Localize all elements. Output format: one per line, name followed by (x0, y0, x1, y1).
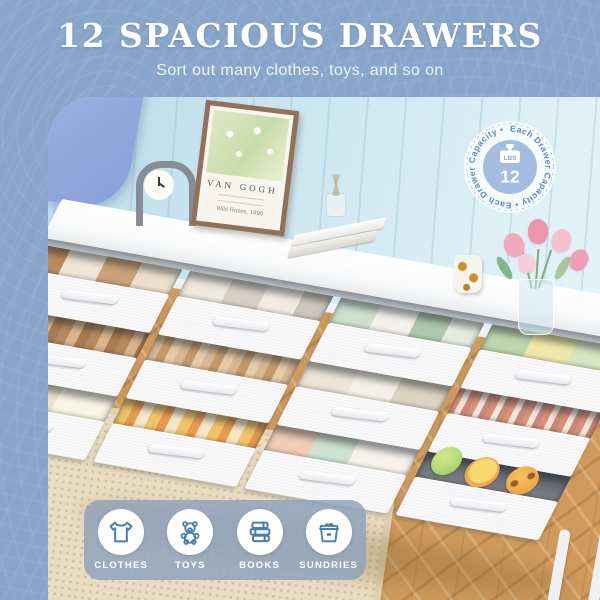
drawer-handle (331, 406, 390, 421)
drawer-handle (363, 343, 422, 358)
poster-text-lines (218, 194, 265, 207)
page-title: 12 SPACIOUS DRAWERS (0, 16, 600, 55)
category-panel: CLOTHES TOYS (84, 500, 366, 580)
wall-poster: VAN GOGH Wild Roses, 1890 (191, 100, 300, 237)
drawer-handle (449, 497, 508, 512)
poster-mat: VAN GOGH Wild Roses, 1890 (196, 105, 294, 230)
poster-artwork (206, 110, 289, 181)
teddy-bear-icon (176, 518, 204, 546)
category-label: BOOKS (228, 560, 292, 571)
category-clothes: CLOTHES (89, 509, 153, 571)
drawer-handle (514, 369, 573, 384)
category-sundries: SUNDRIES (297, 509, 361, 571)
header: 12 SPACIOUS DRAWERS Sort out many clothe… (0, 16, 600, 80)
category-bubble (167, 509, 213, 555)
category-toys: TOYS (158, 509, 222, 571)
capacity-badge-graphic: Each Drawer Capacity • Each Drawer Capac… (462, 119, 558, 215)
badge-value: 12 (500, 167, 520, 187)
reed-diffuser (326, 193, 346, 217)
category-label: TOYS (158, 560, 222, 571)
books-icon (246, 518, 274, 546)
page-subtitle: Sort out many clothes, toys, and so on (0, 62, 600, 80)
drawer-handle (48, 417, 55, 432)
drawer-handle (180, 380, 239, 395)
poster-caption: Wild Roses, 1890 (216, 205, 263, 217)
drawer-handle (48, 353, 87, 368)
tulip-flower (528, 219, 548, 244)
drawer-handle (482, 433, 541, 448)
category-books: BOOKS (228, 509, 292, 571)
drawer-handle (212, 316, 271, 331)
drawer-handle (61, 289, 120, 304)
drawer-handle (298, 470, 357, 485)
flower-leaf (494, 255, 515, 282)
category-label: SUNDRIES (297, 560, 361, 571)
clock-face (144, 170, 174, 200)
category-bubble (98, 509, 144, 555)
capacity-badge: Each Drawer Capacity • Each Drawer Capac… (462, 119, 558, 215)
badge-unit-label: LBS (504, 155, 518, 162)
storage-box-icon (315, 518, 343, 546)
category-label: CLOTHES (89, 560, 153, 571)
tulip-flower (517, 252, 537, 274)
category-bubble (306, 509, 352, 555)
arch-clock (136, 161, 196, 226)
tulip-flower (549, 227, 574, 254)
drawer-handle (147, 443, 206, 458)
product-infographic: 12 SPACIOUS DRAWERS Sort out many clothe… (0, 0, 600, 600)
category-bubble (237, 509, 283, 555)
glass-vase (518, 279, 554, 335)
tshirt-icon (107, 518, 135, 546)
tulip-flower (566, 246, 592, 274)
tulip-bouquet (486, 215, 600, 345)
ceramic-vase (454, 255, 482, 293)
